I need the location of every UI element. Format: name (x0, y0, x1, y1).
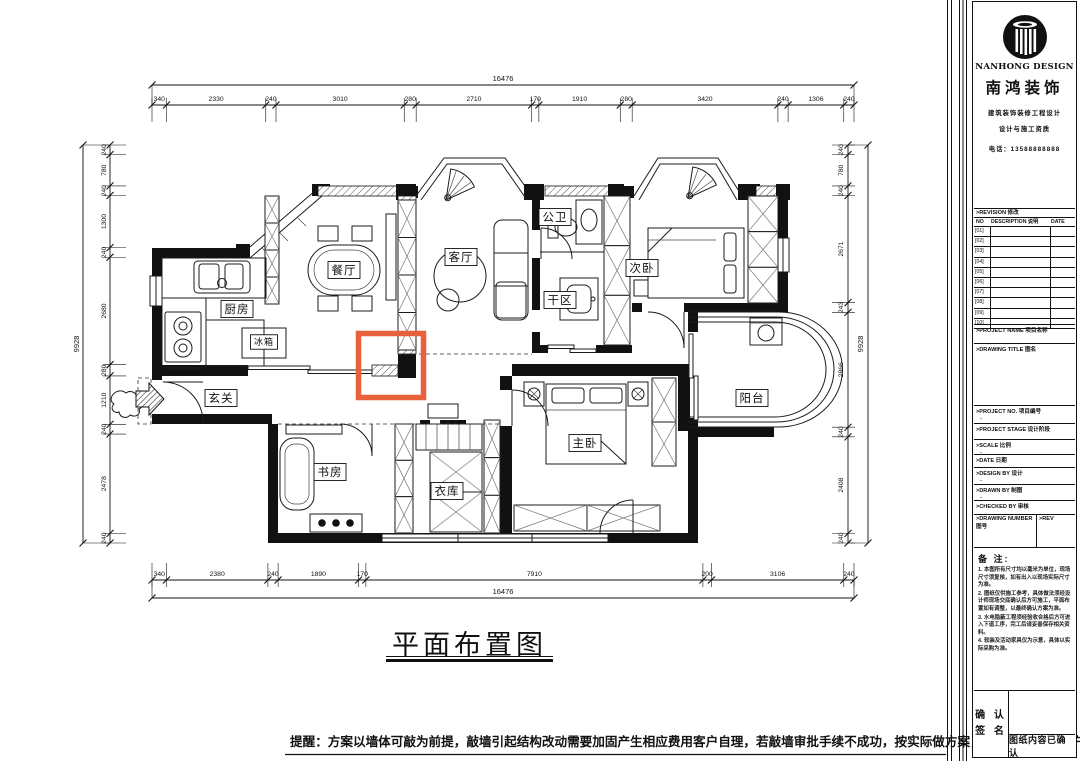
study-door-swing (340, 424, 372, 456)
company-logo (973, 14, 1076, 62)
field-checked-by: >CHECKED BY 审核 (974, 500, 1075, 515)
svg-text:衣库: 衣库 (435, 484, 460, 498)
svg-text:餐厅: 餐厅 (332, 263, 357, 277)
revision-row: [03] (974, 247, 1075, 257)
master-bed (546, 384, 626, 464)
dim-label: 2866 (838, 362, 845, 377)
dim-label: 1910 (572, 96, 587, 103)
field-drawn-by: >DRAWN BY 制图 - (974, 484, 1075, 501)
dim-label: 240 (101, 532, 108, 544)
master-door-swing (512, 390, 548, 426)
room-label-living: 客厅 (445, 249, 477, 266)
dim-label: 170 (530, 96, 542, 103)
revision-header: >REVISION 修改 (974, 209, 1075, 218)
tv-cabinet (386, 214, 396, 300)
balcony-railing (688, 312, 842, 427)
note-line: 1. 本图所有尺寸均以毫米为单位，现场尺寸须复核，如有出入以现场实际尺寸为准。 (974, 567, 1075, 591)
revision-row: [01] (974, 227, 1075, 237)
dim-label: 170 (357, 571, 369, 578)
pillow (724, 265, 736, 293)
dim-label: 2671 (838, 241, 845, 256)
field-drawing-number: >DRAWING NUMBER 图号 >REV (974, 514, 1075, 548)
sliding-door (689, 334, 693, 378)
dim-label: 240 (267, 571, 279, 578)
title-underline (386, 656, 553, 664)
bed2-bed (648, 228, 744, 298)
dim-label: 340 (154, 96, 166, 103)
brand-name-cn: 南鸿装饰 (973, 76, 1076, 98)
svg-text:书房: 书房 (318, 466, 343, 479)
room-label-entry: 玄关 (205, 390, 237, 407)
field-drawing-title: >DRAWING TITLE 图名 (974, 343, 1075, 406)
sliding-door (548, 345, 574, 349)
entrance-arrow (111, 383, 164, 417)
kitchen-lower-counter (162, 298, 206, 368)
dim-label: 9928 (856, 336, 865, 353)
dim-label: 240 (843, 571, 855, 578)
revision-row: [05] (974, 268, 1075, 278)
dim-label: 340 (154, 571, 166, 578)
svg-text:公卫: 公卫 (543, 211, 568, 224)
svg-text:主卧: 主卧 (573, 437, 598, 450)
dim-label: 280 (405, 96, 417, 103)
notes-section: 备 注: 1. 本图所有尺寸均以毫米为单位，现场尺寸须复核，如有出入以现场实际尺… (974, 547, 1075, 691)
brand-subtitle: 设计与施工资质 (973, 124, 1076, 133)
dim-label: 280 (621, 96, 633, 103)
svg-text:干区: 干区 (548, 295, 573, 307)
room-label-fridge: 冰箱 (251, 335, 278, 350)
pillow (724, 233, 736, 261)
dim-label: 1890 (311, 571, 326, 578)
stove (165, 312, 201, 362)
svg-text:阳台: 阳台 (740, 391, 765, 405)
dim-label: 240 (101, 144, 108, 156)
logo-icon (1002, 14, 1048, 60)
dim-label: 780 (101, 164, 108, 176)
dim-label: 2478 (101, 476, 108, 491)
chair (352, 296, 372, 311)
dim-label: 3010 (333, 96, 348, 103)
bed2-door-swing (648, 312, 684, 348)
room-label-dry: 干区 (544, 292, 576, 309)
svg-text:玄关: 玄关 (209, 391, 234, 405)
note-line: 4. 软装及活动家具仅为示意，具体以实际采购为准。 (974, 638, 1075, 654)
dim-label: 3106 (770, 571, 785, 578)
dim-label: 240 (101, 185, 108, 197)
revision-row: [08] (974, 298, 1075, 308)
field-date: >DATE 日期 (974, 454, 1075, 468)
blueprint-page: 3402330240301028027101701910280342024013… (0, 0, 1080, 761)
revision-row: [02] (974, 237, 1075, 247)
dim-label: 200 (702, 571, 714, 578)
arrow-icon (136, 383, 164, 415)
svg-text:冰箱: 冰箱 (254, 336, 274, 347)
field-scale: >SCALE 比例 - (974, 439, 1075, 455)
sofa (494, 220, 528, 320)
note-line: 2. 图纸仅供施工参考，具体做法须经设计师现场交底确认后方可施工，平面布置如有调… (974, 591, 1075, 615)
nightstand (634, 280, 648, 296)
dim-left: 2407802401300240268028012102402478240992… (72, 142, 126, 547)
svg-text:厨房: 厨房 (225, 303, 250, 316)
sliding-door (570, 349, 596, 353)
dim-label: 7910 (527, 571, 542, 578)
field-project-no: >PROJECT NO. 项目编号 - (974, 405, 1075, 424)
dim-label: 243 (838, 302, 845, 314)
dim-label: 240 (101, 247, 108, 259)
room-label-bed2: 次卧 (626, 260, 658, 277)
dim-label: 2710 (466, 96, 481, 103)
sliding-door (308, 370, 372, 374)
sliding-door (694, 376, 698, 420)
brand-name-en: NANHONG DESIGN (973, 62, 1076, 72)
room-label-study: 书房 (314, 464, 346, 481)
note-line: 3. 水电隐蔽工程须经验收合格后方可进入下道工序，完工后请妥善保存相关资料。 (974, 615, 1075, 639)
svg-text:客厅: 客厅 (449, 250, 474, 264)
sliding-door (248, 366, 310, 370)
dim-label: 240 (838, 426, 845, 438)
dim-top: 3402330240301028027101701910280342024013… (149, 74, 858, 122)
chair (352, 226, 372, 241)
dim-label: 2408 (838, 477, 845, 492)
room-label-bath: 公卫 (539, 209, 571, 226)
revision-columns: NODESCRIPTION 说明DATE (974, 218, 1075, 227)
dim-label: 240 (843, 96, 855, 103)
room-label-balcony: 阳台 (736, 390, 768, 407)
vanity (576, 200, 602, 244)
room-label-kitchen: 厨房 (221, 301, 253, 318)
dim-label: 1300 (101, 214, 108, 229)
dim-label: 240 (777, 96, 789, 103)
room-label-dining: 餐厅 (328, 262, 360, 279)
dim-label: 2680 (101, 303, 108, 318)
chair (318, 296, 338, 311)
dim-label: 240 (265, 96, 277, 103)
dim-bottom: 340238024018901707910200310624016476 (149, 563, 858, 602)
dim-label: 240 (101, 423, 108, 435)
confirm-text: 图纸内容已确认 (1009, 734, 1075, 757)
revision-row: [09] (974, 309, 1075, 319)
title-block: NANHONG DESIGN 南鸿装饰 建筑装饰装修工程设计 设计与施工资质 电… (972, 1, 1077, 758)
dim-label: 780 (838, 164, 845, 176)
chair (318, 226, 338, 241)
field-design-by: >DESIGN BY 设计 - (974, 467, 1075, 485)
brand-phone: 电话：13588888888 (973, 144, 1076, 153)
notes-title: 备 注: (974, 548, 1075, 567)
dim-label: 240 (838, 185, 845, 197)
field-project-stage: >PROJECT STAGE 设计阶段 (974, 423, 1075, 440)
dim-label: 240 (838, 532, 845, 544)
signature-area[interactable] (1009, 691, 1075, 734)
shelf (286, 425, 342, 434)
dim-right: 2407802402671243286624024082409928 (832, 142, 872, 547)
revision-row: [04] (974, 258, 1075, 268)
revision-row: [06] (974, 278, 1075, 288)
brand-subtitle: 建筑装饰装修工程设计 (973, 108, 1076, 117)
dim-label: 2330 (209, 96, 224, 103)
dim-label: 16476 (493, 587, 514, 596)
confirm-section: 确 认 签 名 图纸内容已确认 (974, 690, 1075, 757)
room-label-master: 主卧 (569, 435, 601, 452)
pillow (590, 388, 622, 403)
field-project-name: >PROJECT NAME 项目名称 (974, 324, 1075, 344)
revision-row: [07] (974, 288, 1075, 298)
dim-label: 280 (101, 364, 108, 376)
dim-label: 240 (838, 144, 845, 156)
dim-label: 9928 (72, 336, 81, 353)
svg-text:次卧: 次卧 (630, 261, 655, 275)
dim-label: 3420 (697, 96, 712, 103)
dim-label: 16476 (493, 74, 514, 83)
room-label-cloak: 衣库 (431, 483, 463, 500)
pillow (552, 388, 584, 403)
dim-label: 1306 (808, 96, 823, 103)
dim-label: 2380 (210, 571, 225, 578)
bath-door-swing (541, 228, 572, 259)
revision-table: >REVISION 修改NODESCRIPTION 说明DATE[01][02]… (974, 208, 1075, 329)
confirm-signature-label: 确 认 签 名 (974, 691, 1009, 757)
threshold (428, 404, 458, 418)
dim-label: 1210 (101, 392, 108, 407)
reminder-note: 提醒：方案以墙体可敲为前提，敲墙引起结构改动需要加固产生相应费用客户自理，若敲墙… (290, 731, 945, 750)
